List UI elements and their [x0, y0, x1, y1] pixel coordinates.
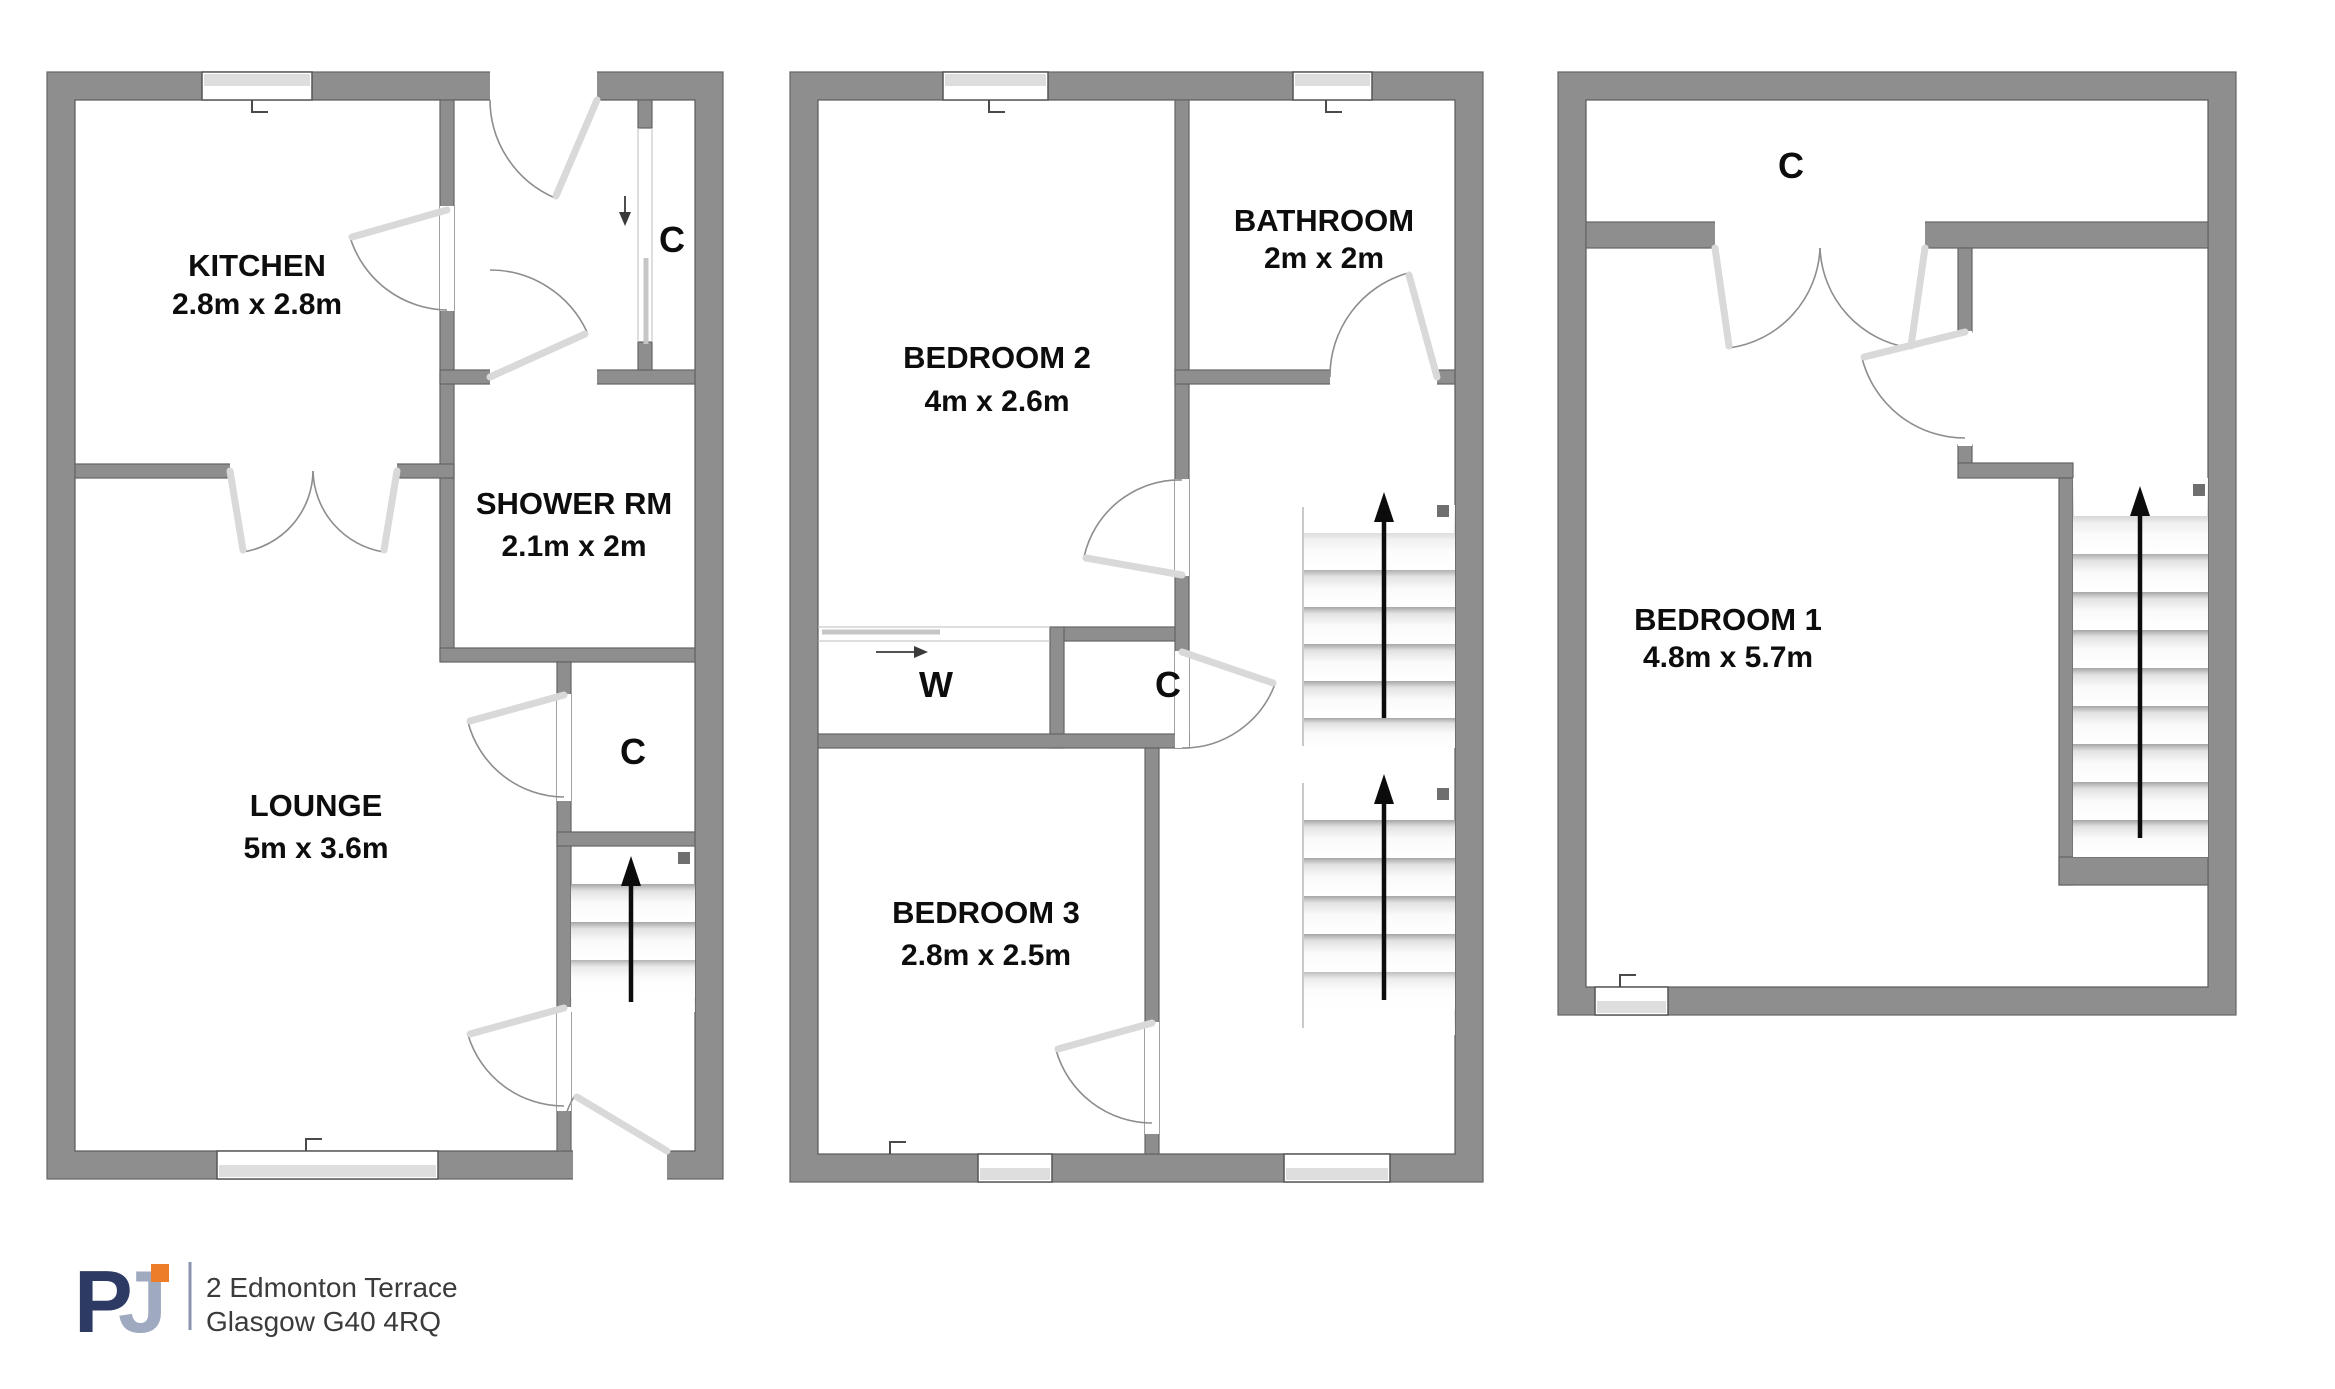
first-staircase-upper — [1302, 492, 1455, 748]
room-label-bathroom: BATHROOM — [1234, 203, 1414, 238]
address-line-1: 2 Edmonton Terrace — [206, 1272, 458, 1303]
stair-top-marker — [1437, 788, 1449, 800]
second-floor-plan: C BEDROOM 1 4.8m x 5.7m — [1558, 72, 2236, 1015]
stair-top-marker — [678, 852, 690, 864]
logo-accent-square-icon — [151, 1264, 169, 1282]
wardrobe-label: W — [919, 664, 953, 705]
room-dims-bedroom2: 4m x 2.6m — [924, 385, 1069, 418]
landing-window — [1284, 1154, 1390, 1182]
floorplan-drawing: KITCHEN 2.8m x 2.8m C SHOWER RM 2.1m x 2… — [0, 0, 2335, 1389]
lounge-window — [217, 1151, 438, 1179]
room-dims-bathroom: 2m x 2m — [1264, 242, 1384, 275]
address-line-2: Glasgow G40 4RQ — [206, 1306, 441, 1337]
stair-top-marker — [1437, 505, 1449, 517]
room-dims-bedroom3: 2.8m x 2.5m — [901, 939, 1071, 972]
room-label-lounge: LOUNGE — [250, 788, 383, 823]
first-floor-plan: BEDROOM 2 4m x 2.6m BATHROOM 2m x 2m W C… — [790, 72, 1483, 1182]
room-label-bedroom3: BEDROOM 3 — [892, 895, 1080, 930]
bedroom2-window — [943, 72, 1048, 100]
bedroom3-window — [978, 1154, 1052, 1182]
floorplan-page: KITCHEN 2.8m x 2.8m C SHOWER RM 2.1m x 2… — [0, 0, 2335, 1389]
bedroom1-window — [1595, 987, 1668, 1015]
closet-label-second: C — [1778, 145, 1804, 186]
agency-logo: P J — [74, 1252, 169, 1351]
closet-label-stairs: C — [620, 731, 646, 772]
footer-branding: P J 2 Edmonton Terrace Glasgow G40 4RQ — [74, 1252, 458, 1351]
room-dims-kitchen: 2.8m x 2.8m — [172, 288, 342, 321]
room-dims-bedroom1: 4.8m x 5.7m — [1643, 641, 1813, 674]
room-dims-lounge: 5m x 3.6m — [243, 832, 388, 865]
closet-label-hall: C — [659, 219, 685, 260]
room-label-kitchen: KITCHEN — [188, 248, 326, 283]
stair-top-marker — [2193, 484, 2205, 496]
second-staircase — [2073, 478, 2208, 857]
ground-floor-plan: KITCHEN 2.8m x 2.8m C SHOWER RM 2.1m x 2… — [47, 71, 723, 1180]
room-dims-shower: 2.1m x 2m — [501, 530, 646, 563]
room-label-shower: SHOWER RM — [476, 486, 672, 521]
bathroom-window — [1293, 72, 1372, 100]
room-label-bedroom2: BEDROOM 2 — [903, 340, 1091, 375]
kitchen-window — [202, 72, 312, 100]
room-label-bedroom1: BEDROOM 1 — [1634, 602, 1822, 637]
closet-label-first: C — [1155, 664, 1181, 705]
